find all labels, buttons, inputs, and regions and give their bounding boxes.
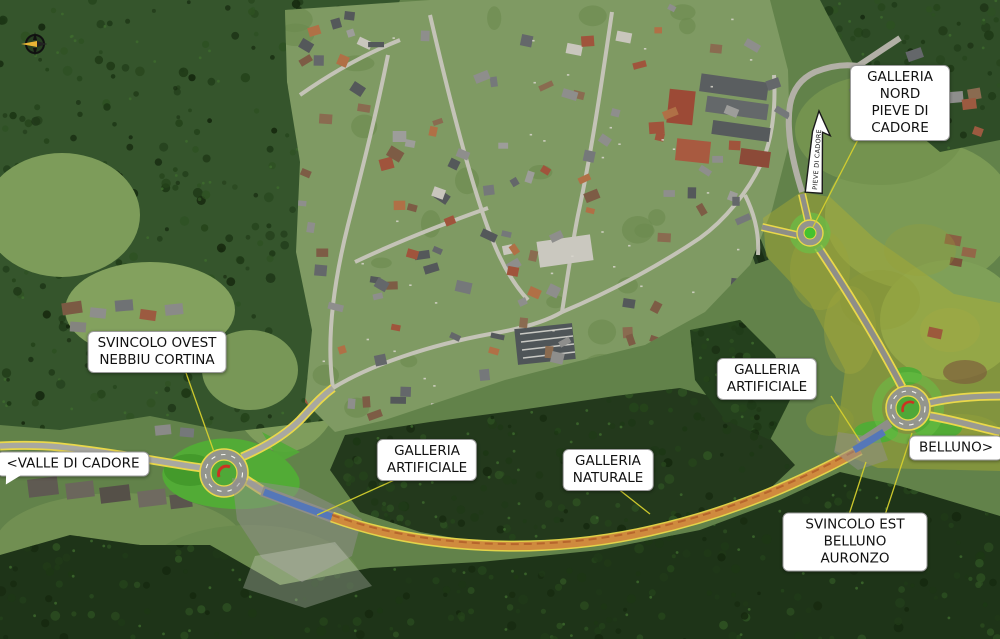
label-galleria-naturale: GALLERIA NATURALE [563, 449, 654, 491]
label-galleria-artificiale-ovest: GALLERIA ARTIFICIALE [377, 439, 477, 481]
project-map-canvas: PIEVE DI CADORE GALLERIA NORD PIEVE DI C… [0, 0, 1000, 639]
label-svincolo-ovest: SVINCOLO OVEST NEBBIU CORTINA [88, 331, 227, 373]
label-valle-di-cadore: <VALLE DI CADORE [0, 452, 150, 477]
label-svincolo-est: SVINCOLO EST BELLUNO AURONZO [783, 513, 928, 572]
label-belluno: BELLUNO> [909, 436, 1000, 461]
label-galleria-artificiale-est: GALLERIA ARTIFICIALE [717, 358, 817, 400]
label-galleria-nord: GALLERIA NORD PIEVE DI CADORE [850, 65, 950, 141]
